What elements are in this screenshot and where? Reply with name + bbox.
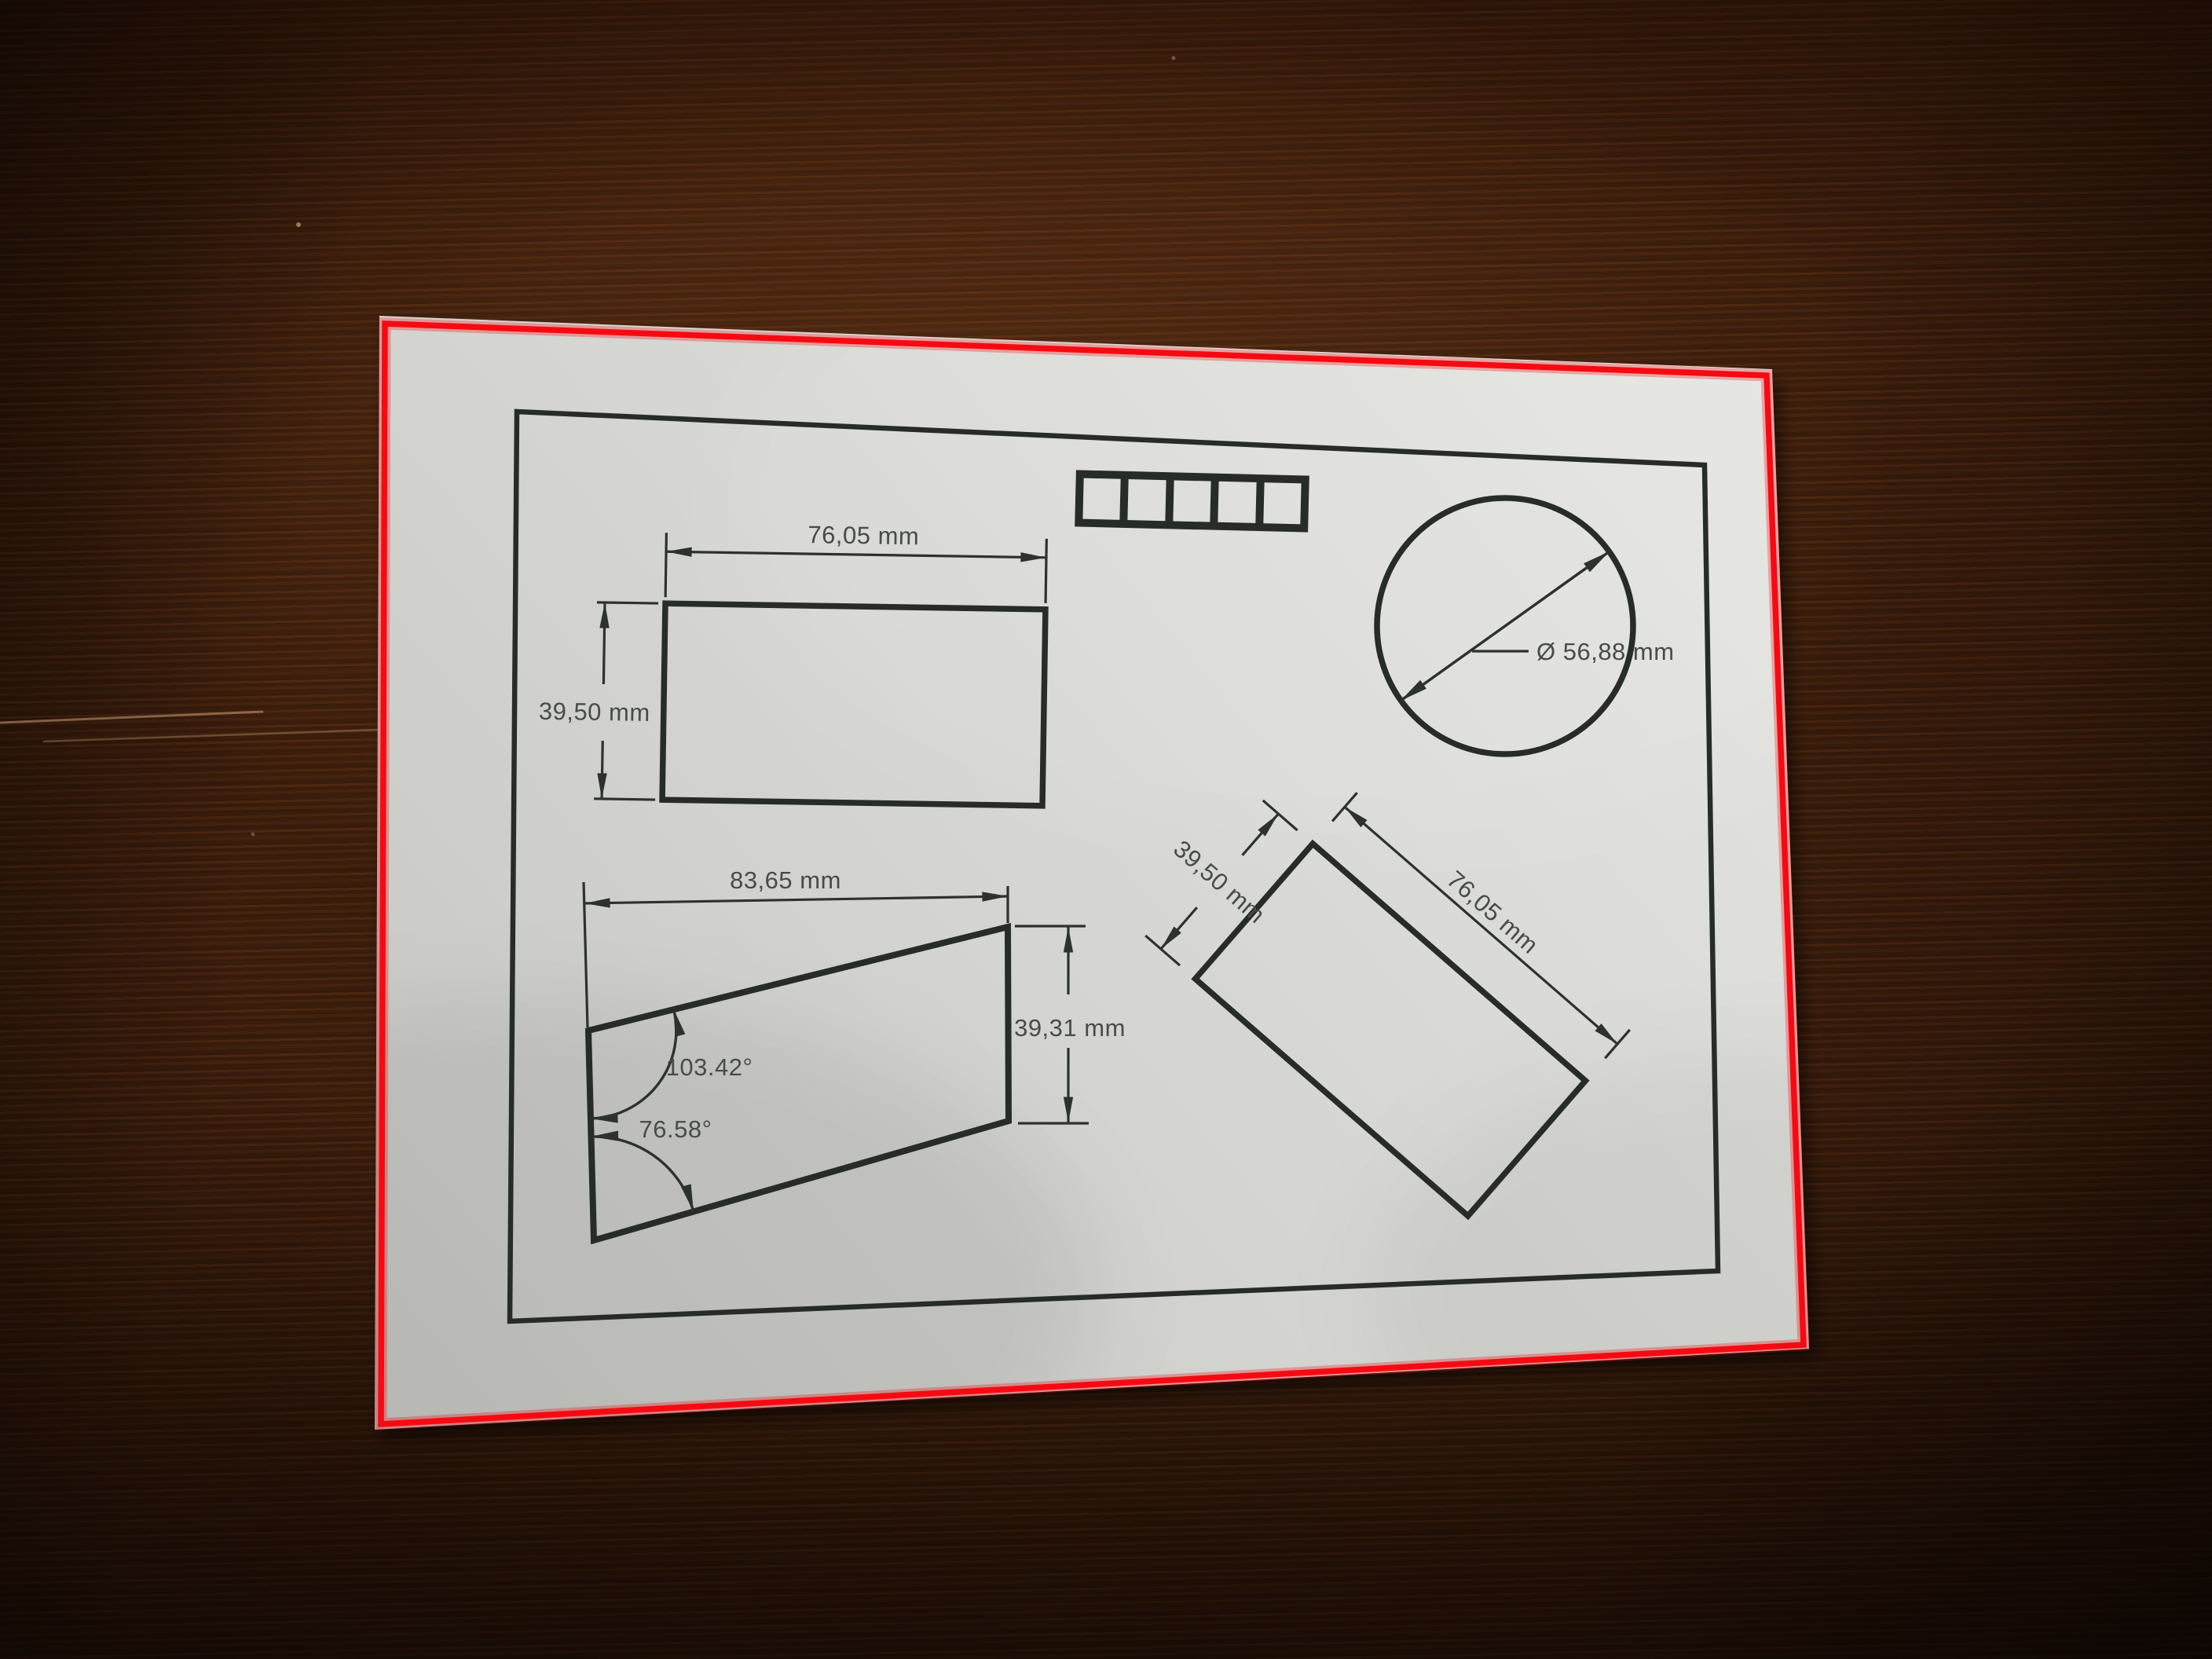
rect-width-dimension-label: 76,05 mm xyxy=(808,521,919,550)
dust-speck xyxy=(251,833,255,837)
extension-tick xyxy=(665,533,666,597)
dust-speck xyxy=(1172,57,1176,60)
extension-tick xyxy=(1046,539,1046,603)
dust-speck xyxy=(296,222,301,227)
height-dimension-line xyxy=(603,602,605,684)
photo-scene: 76,05 mm 39,50 mm Ø 56,88 mm 76,05 mm 39… xyxy=(0,0,2212,1659)
trapezoid-top-angle-label: 103.42° xyxy=(666,1053,753,1081)
extension-tick xyxy=(597,602,658,603)
circle-diameter-label: Ø 56,88 mm xyxy=(1536,638,1675,665)
extension-tick xyxy=(594,799,655,800)
table-scratch xyxy=(0,712,263,723)
trapezoid-width-label: 83,65 mm xyxy=(730,866,841,894)
drawing-layer: 76,05 mm 39,50 mm Ø 56,88 mm 76,05 mm 39… xyxy=(0,0,2212,1659)
trapezoid-height-label: 39,31 mm xyxy=(1014,1014,1126,1042)
trapezoid-bottom-angle-label: 76.58° xyxy=(639,1115,712,1143)
height-dimension-line xyxy=(602,741,602,799)
rect-height-dimension-label: 39,50 mm xyxy=(539,698,650,727)
